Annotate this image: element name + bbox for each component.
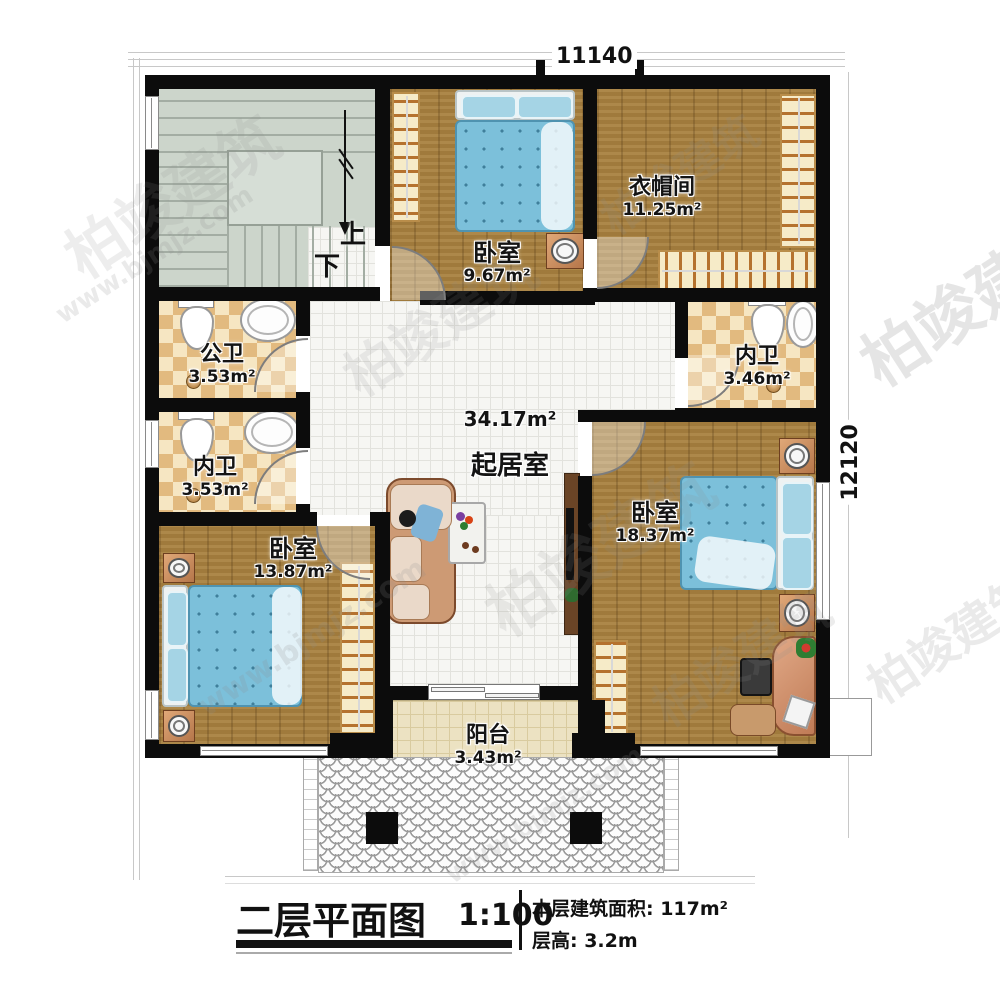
wall-segment	[578, 410, 688, 422]
room-name: 内卫	[193, 456, 237, 481]
wall-segment	[145, 287, 380, 301]
ledge-line	[128, 66, 845, 67]
room-name: 公卫	[200, 343, 244, 368]
wall-segment	[375, 89, 390, 246]
wardrobe	[392, 92, 420, 222]
room-area: 3.43m²	[454, 749, 521, 768]
room-area: 3.53m²	[188, 368, 255, 387]
title-underline	[236, 940, 512, 948]
window	[145, 96, 159, 150]
lamp-icon	[784, 443, 810, 469]
room-area: 13.87m²	[254, 563, 333, 582]
plant	[565, 588, 579, 602]
room-label-balcony: 阳台 3.43m²	[438, 724, 538, 768]
room-name: 卧室	[473, 240, 521, 267]
wall-segment	[145, 398, 310, 412]
dimension-bracket-cap	[536, 60, 545, 88]
bed-sheet	[541, 122, 573, 230]
pillow	[517, 95, 573, 119]
pillow	[781, 536, 813, 590]
room-area: 18.37m²	[616, 527, 695, 546]
porch-column	[366, 812, 398, 844]
computer-monitor	[740, 658, 772, 696]
room-label-ensuite-right: 内卫 3.46m²	[707, 345, 807, 389]
sofa-cushion	[392, 584, 430, 620]
stair-down-label: 下	[314, 246, 340, 283]
lamp-icon	[168, 558, 190, 578]
bed-sheet	[272, 587, 302, 705]
ledge-line	[139, 58, 140, 880]
room-area: 3.46m²	[723, 370, 790, 389]
stair-landing	[227, 150, 323, 226]
sofa-cushion	[390, 536, 422, 582]
title-block: 二层平面图 1:100 本层建筑面积: 117m² 层高: 3.2m	[230, 888, 850, 966]
dimension-right-wrap: 12120	[820, 414, 880, 510]
pillow	[461, 95, 517, 119]
dimension-top: 11140	[552, 44, 637, 69]
sliding-door-leaf	[485, 693, 539, 698]
wall-left	[145, 75, 159, 758]
wardrobe	[780, 94, 816, 248]
room-label-bedroom-right: 卧室 18.37m²	[600, 500, 710, 546]
sink	[240, 298, 296, 342]
pillow	[166, 647, 188, 703]
sliding-door-leaf	[431, 687, 485, 692]
porch-column	[570, 812, 602, 844]
wall-segment	[420, 291, 595, 305]
wall-segment	[145, 512, 317, 526]
balcony-sliding-door	[428, 684, 540, 700]
room-name: 卧室	[269, 536, 317, 563]
ledge-line	[133, 58, 134, 880]
wall-segment	[675, 302, 688, 358]
stair-up-label: 上	[340, 214, 366, 251]
floor-area-text: 本层建筑面积: 117m²	[532, 894, 728, 921]
window	[145, 420, 159, 468]
wall-segment	[583, 288, 830, 302]
room-label-ensuite-left: 内卫 3.53m²	[165, 456, 265, 500]
lamp-icon	[784, 599, 810, 627]
flower-vase	[460, 522, 468, 530]
window	[200, 746, 328, 756]
pillow	[781, 482, 813, 536]
room-label-public-bath: 公卫 3.53m²	[172, 343, 272, 387]
nightstand	[163, 710, 195, 742]
porch-railing	[664, 757, 679, 871]
table-item	[462, 542, 469, 549]
lamp-icon	[168, 715, 190, 737]
sink	[786, 300, 820, 348]
porch-railing	[303, 757, 318, 871]
wardrobe	[658, 250, 816, 290]
ledge-line	[225, 876, 755, 877]
person	[399, 510, 416, 527]
stair-treads	[159, 153, 227, 287]
room-label-bedroom-top: 卧室 9.67m²	[447, 240, 547, 286]
ledge-line	[128, 59, 845, 60]
tv	[566, 508, 574, 580]
room-name: 阳台	[466, 724, 510, 749]
watermark-brand: 柏竣建筑	[841, 188, 1000, 405]
room-area: 3.53m²	[181, 481, 248, 500]
wall-segment	[675, 408, 830, 422]
room-living-floor	[310, 301, 675, 412]
title-divider	[519, 890, 522, 950]
title-underline-thin	[236, 952, 512, 954]
desk-chair	[730, 704, 776, 736]
wall-segment	[375, 512, 390, 700]
ledge-line	[225, 883, 755, 884]
watermark-brand: 柏竣建筑	[851, 553, 1000, 716]
wall-segment	[330, 733, 393, 758]
dimension-bracket	[538, 76, 642, 88]
room-name: 卧室	[631, 500, 679, 527]
stair-treads	[159, 89, 375, 153]
plan-title: 二层平面图	[236, 890, 426, 945]
wardrobe	[340, 562, 375, 734]
wall-segment	[296, 301, 310, 336]
table-item	[472, 546, 479, 553]
nightstand	[163, 553, 195, 583]
sink	[244, 410, 300, 454]
lamp-icon	[551, 238, 579, 264]
window	[145, 690, 159, 740]
flower-vase	[456, 512, 465, 521]
wall-top	[145, 75, 830, 89]
dimension-right: 12120	[838, 420, 863, 505]
ledge-line	[128, 52, 845, 53]
pillow	[166, 591, 188, 647]
window	[640, 746, 778, 756]
room-name: 衣帽间	[629, 176, 695, 201]
wall-segment	[578, 476, 592, 744]
nightstand	[779, 594, 815, 632]
room-area: 34.17m²	[464, 408, 557, 430]
coffee-table	[448, 502, 486, 564]
floor-height-text: 层高: 3.2m	[532, 926, 638, 953]
room-label-living: 34.17m² 起居室	[445, 408, 575, 482]
floor-plan-canvas: 上 下	[0, 0, 1000, 990]
nightstand	[546, 233, 584, 269]
room-area: 11.25m²	[623, 201, 702, 220]
room-area: 9.67m²	[463, 267, 530, 286]
exterior-step	[826, 698, 872, 756]
wall-segment	[572, 733, 635, 758]
room-name: 起居室	[471, 452, 549, 481]
plant	[796, 638, 816, 658]
room-label-closet: 衣帽间 11.25m²	[607, 176, 717, 220]
room-label-bedroom-left: 卧室 13.87m²	[238, 536, 348, 582]
nightstand	[779, 438, 815, 474]
wall-segment	[583, 89, 597, 239]
room-name: 内卫	[735, 345, 779, 370]
